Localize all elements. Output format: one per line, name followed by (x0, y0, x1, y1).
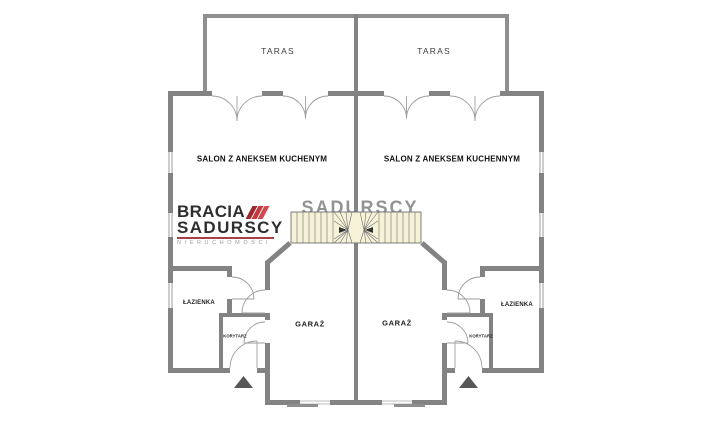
brand-logo-line1: BRACIA (177, 204, 245, 219)
brand-logo-subtitle: NIERUCHOMOŚCI (177, 241, 284, 247)
brand-logo-line2: SADURSCY (177, 219, 284, 236)
floorplan-canvas: SADURSCY (0, 0, 710, 432)
room-label-living-right: SALON Z ANEKSEM KUCHENNYM (384, 155, 520, 164)
room-label-terrace-right: TARAS (417, 46, 451, 56)
room-label-bathroom-right: ŁAZIENKA (501, 302, 533, 308)
brand-logo-divider (177, 237, 274, 239)
room-label-bathroom-left: ŁAZIENKA (183, 300, 215, 306)
staircase (291, 212, 421, 243)
room-label-terrace-left: TARAS (261, 46, 295, 56)
room-label-garage-right: GARAŻ (382, 319, 412, 328)
room-label-corridor-right: KORYTARZ (469, 334, 493, 339)
brand-logo: BRACIA SADURSCY NIERUCHOMOŚCI (177, 204, 284, 246)
floorplan-drawing (0, 0, 710, 432)
room-label-garage-left: GARAŻ (295, 320, 325, 329)
room-label-living-left: SALON Z ANEKSEM KUCHENYM (197, 155, 327, 164)
brand-logo-stripes-icon (248, 206, 266, 219)
room-label-corridor-left: KORYTARZ (223, 334, 247, 339)
